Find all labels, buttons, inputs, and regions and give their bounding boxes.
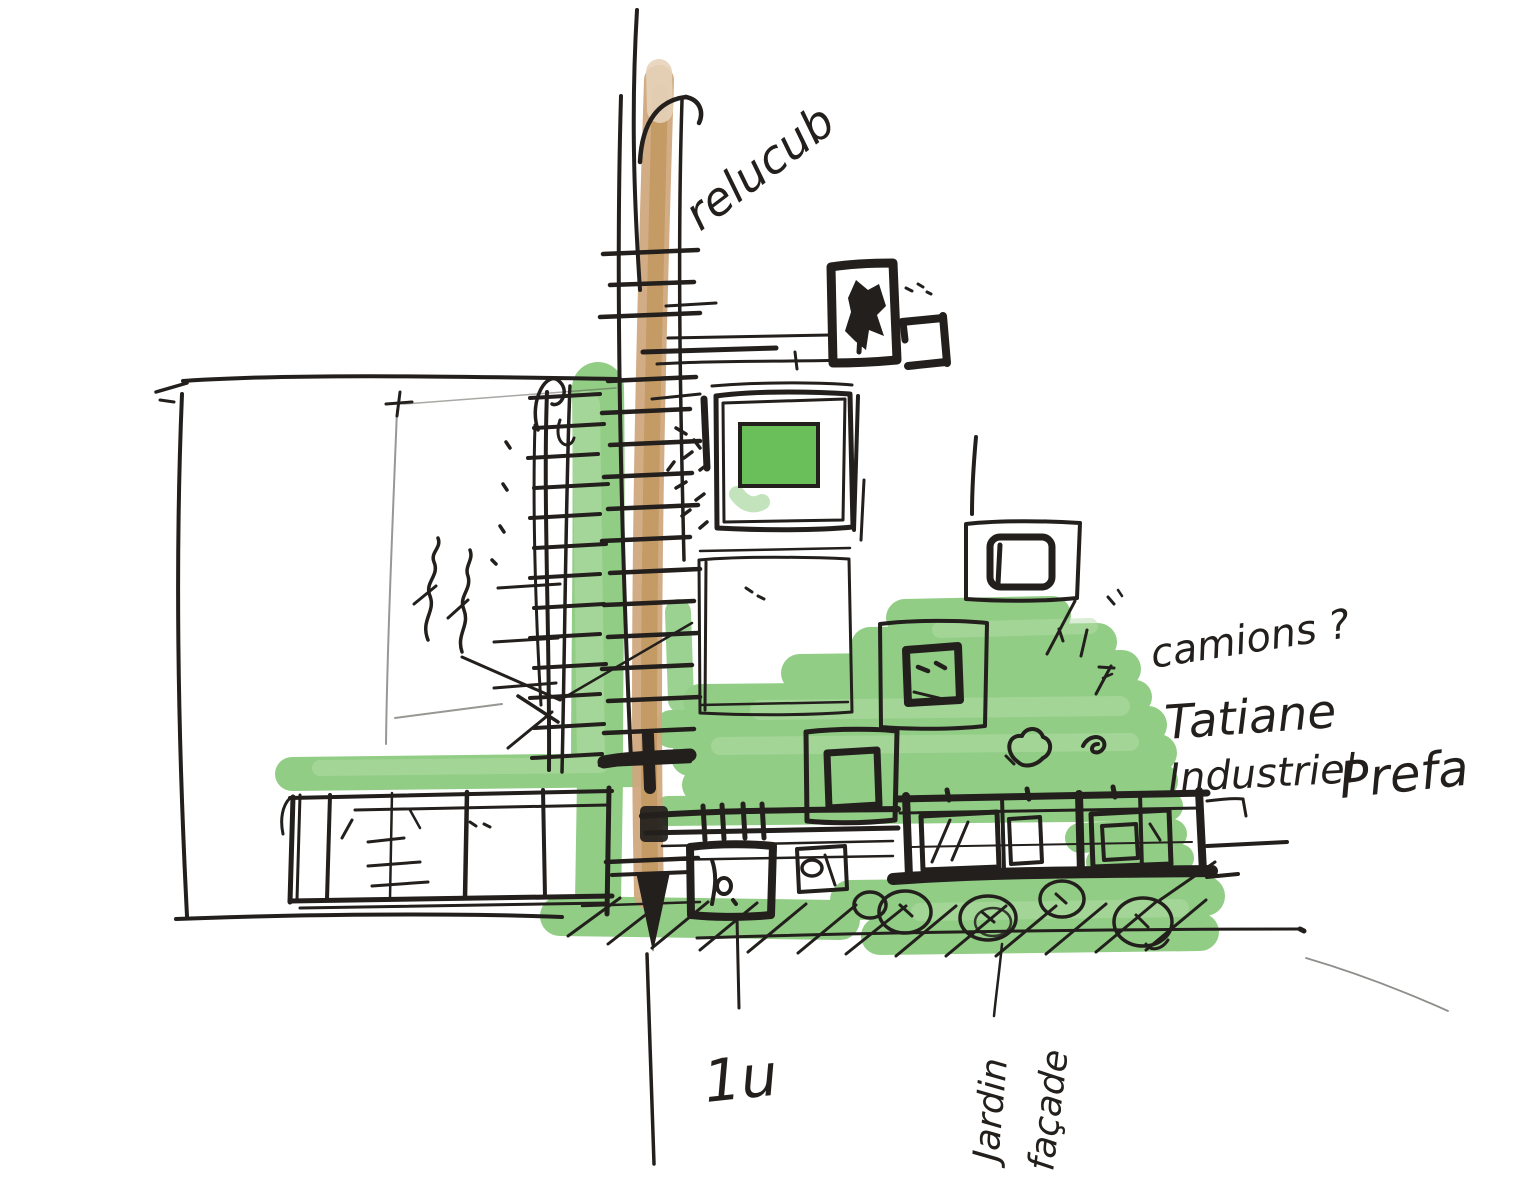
sketch-canvas: relucub camions ? Tatiane Industriel Pre… (0, 0, 1537, 1181)
program-line2-label: Industriel (1167, 746, 1357, 802)
sketch-svg: relucub camions ? Tatiane Industriel Pre… (0, 0, 1537, 1181)
green-pane (740, 424, 818, 486)
dimension-note-label: 1u (700, 1041, 780, 1116)
